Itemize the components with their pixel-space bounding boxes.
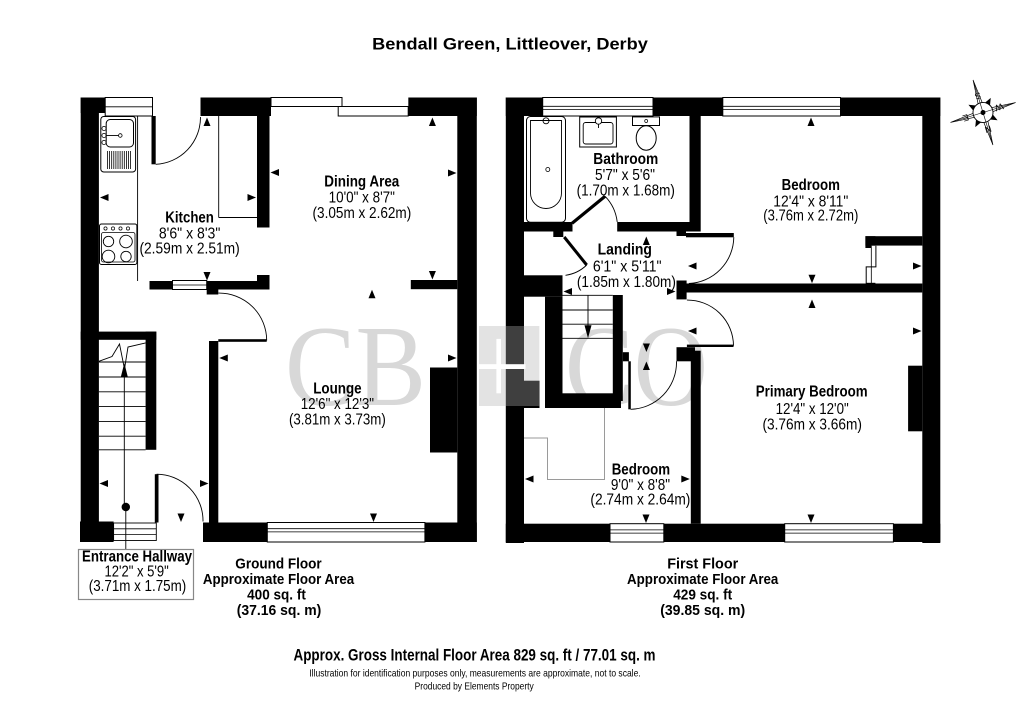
svg-text:Approximate Floor Area: Approximate Floor Area	[627, 571, 779, 588]
svg-text:(3.71m x 1.75m): (3.71m x 1.75m)	[89, 578, 187, 595]
svg-text:Kitchen: Kitchen	[165, 209, 214, 226]
svg-text:(1.85m x 1.80m): (1.85m x 1.80m)	[577, 274, 676, 291]
svg-text:(37.16 sq. m): (37.16 sq. m)	[237, 602, 322, 619]
svg-text:(1.70m x 1.68m): (1.70m x 1.68m)	[577, 182, 675, 199]
svg-text:12'6" x 12'3": 12'6" x 12'3"	[301, 396, 374, 413]
svg-text:(3.76m x 2.72m): (3.76m x 2.72m)	[763, 207, 858, 224]
svg-text:Produced by Elements Property: Produced by Elements Property	[415, 680, 535, 692]
svg-text:Approximate Floor Area: Approximate Floor Area	[203, 571, 355, 588]
svg-text:Bedroom: Bedroom	[612, 462, 670, 479]
svg-text:(3.81m x 3.73m): (3.81m x 3.73m)	[289, 412, 386, 429]
svg-text:(3.05m x 2.62m): (3.05m x 2.62m)	[313, 205, 412, 222]
svg-text:Illustration for identificatio: Illustration for identification purposes…	[309, 667, 640, 679]
svg-text:First Floor: First Floor	[667, 555, 738, 572]
svg-text:Bedroom: Bedroom	[782, 177, 840, 194]
svg-text:(39.85 sq. m): (39.85 sq. m)	[660, 602, 745, 619]
svg-text:Ground Floor: Ground Floor	[235, 555, 322, 572]
svg-text:Dining Area: Dining Area	[324, 174, 399, 191]
svg-text:CO: CO	[565, 303, 708, 430]
svg-text:(3.76m x 3.66m): (3.76m x 3.66m)	[762, 417, 862, 434]
svg-text:Primary Bedroom: Primary Bedroom	[756, 384, 868, 401]
svg-text:Approx. Gross Internal Floor A: Approx. Gross Internal Floor Area 829 sq…	[294, 646, 656, 664]
svg-text:400 sq. ft: 400 sq. ft	[247, 587, 306, 604]
svg-text:(2.59m x 2.51m): (2.59m x 2.51m)	[139, 240, 239, 257]
svg-text:Bendall Green, Littleover, Der: Bendall Green, Littleover, Derby	[372, 35, 648, 54]
svg-text:(2.74m x 2.64m): (2.74m x 2.64m)	[590, 492, 690, 509]
svg-text:12'4" x 12'0": 12'4" x 12'0"	[776, 401, 849, 418]
svg-text:6'1" x 5'11": 6'1" x 5'11"	[593, 258, 662, 275]
svg-text:429 sq. ft: 429 sq. ft	[673, 587, 732, 604]
svg-text:Bathroom: Bathroom	[593, 151, 658, 168]
